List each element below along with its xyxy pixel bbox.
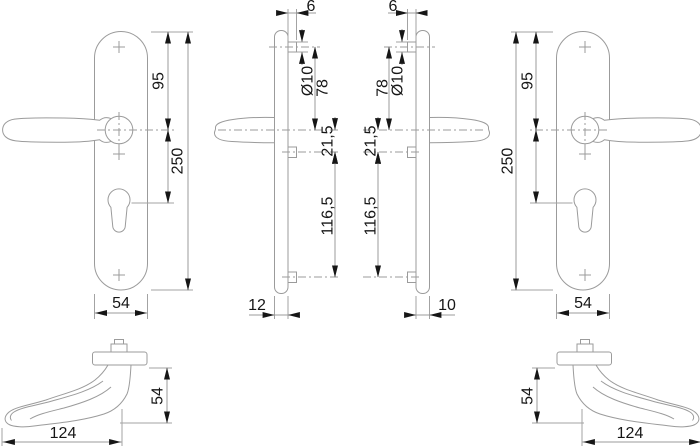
dim-label-proj-54-right: 54: [520, 387, 537, 405]
dim-label-6-left: 6: [307, 0, 316, 15]
dim-label-54-left: 54: [112, 295, 130, 312]
dim-label-12: 12: [248, 297, 266, 314]
lever-handle-outline: [3, 118, 111, 143]
side-view-right: [363, 9, 490, 319]
dim-label-250-left: 250: [170, 148, 187, 175]
dim-label-21-5-left: 21,5: [320, 125, 337, 156]
dim-label-116-5-left: 116,5: [320, 196, 337, 235]
dim-label-proj-54-left: 54: [150, 387, 167, 405]
top-view-left-handle: [2, 340, 172, 446]
dim-label-78-right: 78: [375, 79, 392, 97]
technical-drawing-canvas: 95 250 54 6 Ø10 78 21,5 116,5 12: [0, 0, 700, 446]
dim-label-21-5-right: 21,5: [363, 125, 380, 156]
side-view-left: [214, 9, 341, 319]
dim-label-124-right: 124: [617, 425, 644, 442]
backplate-side-outline: [416, 31, 430, 294]
spindle-bearing: [111, 344, 127, 353]
lever-grip-plan-outline: [5, 365, 131, 427]
dim-label-54-right: 54: [574, 295, 592, 312]
dim-label-250-right: 250: [500, 148, 517, 175]
dim-label-116-5-right: 116,5: [363, 196, 380, 235]
dim-label-6-right: 6: [389, 0, 398, 15]
dim-label-78-left: 78: [315, 79, 332, 97]
dim-label-95-left: 95: [151, 72, 168, 90]
dim-label-124-left: 124: [50, 425, 77, 442]
front-view-right: [511, 32, 700, 320]
technical-drawing-page: 95 250 54 6 Ø10 78 21,5 116,5 12: [0, 0, 700, 446]
backplate-end-view: [93, 352, 148, 365]
dim-label-95-right: 95: [520, 72, 537, 90]
dim-label-dia10-right: Ø10: [390, 66, 407, 96]
dim-label-10: 10: [438, 297, 456, 314]
backplate-outline: [95, 32, 148, 291]
dimension-lines: [249, 13, 335, 315]
backplate-side-outline: [275, 31, 289, 294]
